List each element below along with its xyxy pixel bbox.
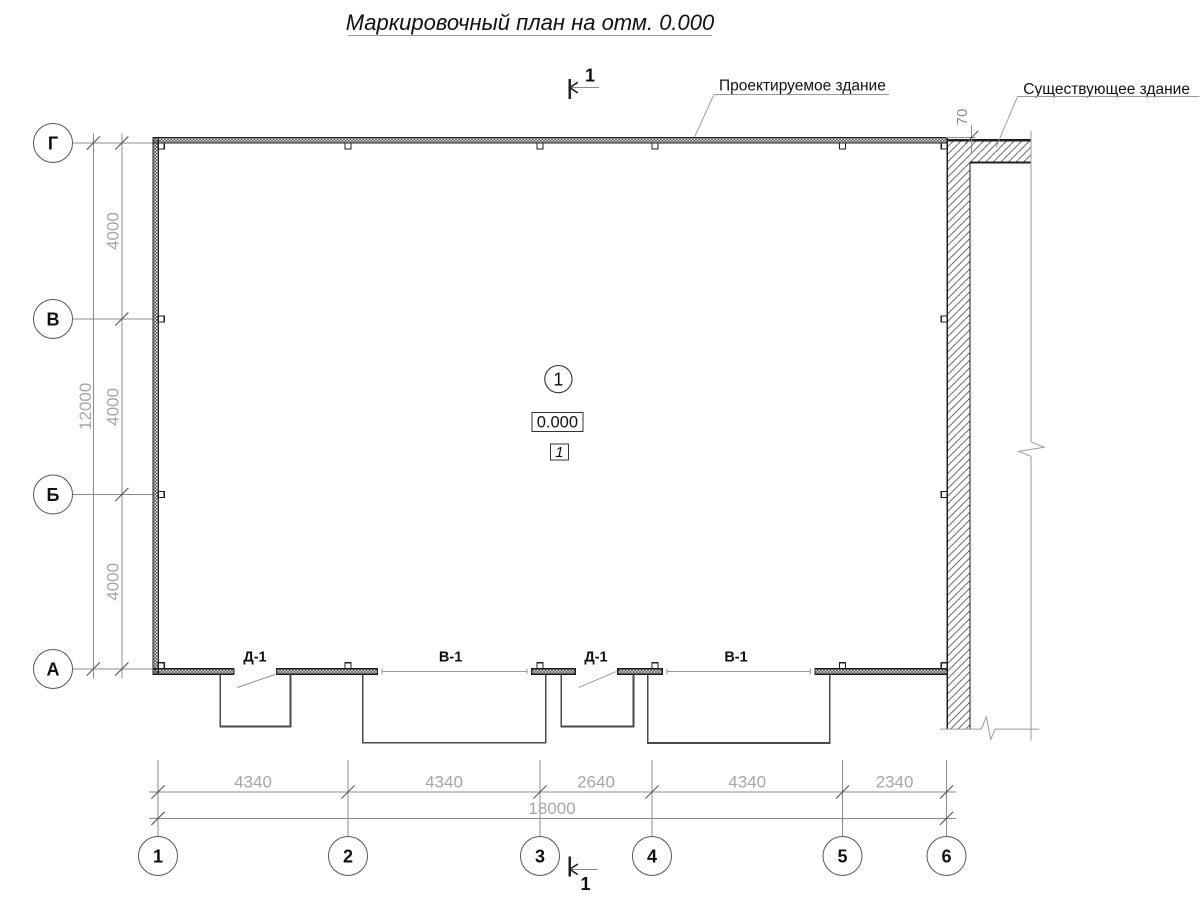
svg-text:А: А xyxy=(47,659,60,679)
svg-text:4000: 4000 xyxy=(104,563,123,601)
svg-text:6: 6 xyxy=(941,846,951,866)
svg-text:Б: Б xyxy=(47,485,60,505)
svg-text:Д-1: Д-1 xyxy=(584,650,607,666)
svg-text:Маркировочный план на отм. 0.0: Маркировочный план на отм. 0.000 xyxy=(346,10,715,35)
svg-text:1: 1 xyxy=(553,369,563,389)
svg-text:Существующее здание: Существующее здание xyxy=(1023,81,1190,98)
svg-text:4340: 4340 xyxy=(728,773,766,792)
svg-text:Проектируемое здание: Проектируемое здание xyxy=(719,78,886,95)
svg-text:5: 5 xyxy=(837,846,847,866)
svg-text:В-1: В-1 xyxy=(724,650,747,666)
svg-text:2340: 2340 xyxy=(876,773,914,792)
svg-text:4340: 4340 xyxy=(425,773,463,792)
svg-text:1: 1 xyxy=(580,874,590,894)
svg-text:4000: 4000 xyxy=(104,212,123,250)
svg-text:В-1: В-1 xyxy=(439,650,462,666)
svg-text:18000: 18000 xyxy=(528,799,575,818)
svg-text:0.000: 0.000 xyxy=(537,413,578,431)
svg-text:2640: 2640 xyxy=(577,773,615,792)
svg-text:12000: 12000 xyxy=(76,383,95,430)
svg-text:Г: Г xyxy=(48,133,58,153)
svg-text:4: 4 xyxy=(647,846,657,866)
svg-text:1: 1 xyxy=(585,66,595,86)
svg-text:4000: 4000 xyxy=(104,388,123,426)
svg-text:70: 70 xyxy=(954,109,971,126)
svg-text:2: 2 xyxy=(343,846,353,866)
svg-text:Д-1: Д-1 xyxy=(243,650,266,666)
svg-text:4340: 4340 xyxy=(234,773,272,792)
svg-text:1: 1 xyxy=(153,846,163,866)
svg-text:В: В xyxy=(47,309,60,329)
svg-text:1: 1 xyxy=(555,444,563,461)
svg-text:3: 3 xyxy=(535,846,545,866)
